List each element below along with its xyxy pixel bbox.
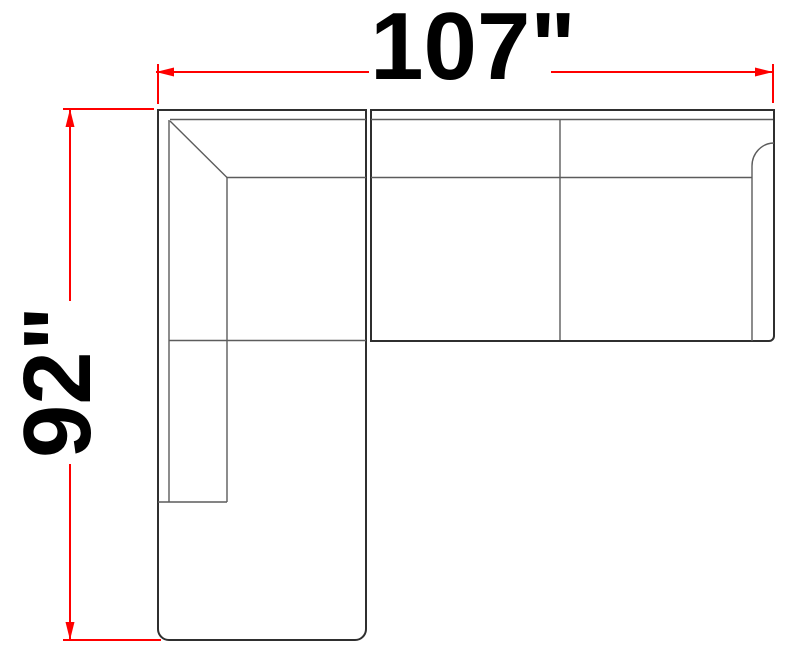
- width-dimension-label: 107": [370, 0, 576, 100]
- height-dimension-label: 92": [4, 306, 111, 458]
- sectional-sofa-plan-diagram: 107" 92": [0, 0, 807, 666]
- sofa-arm-inner-seam: [752, 143, 774, 341]
- sofa-seam-lines: [158, 120, 774, 503]
- corner-miter-seam: [170, 121, 227, 178]
- diagram-canvas: 107" 92": [0, 0, 807, 666]
- width-dimension: 107": [156, 0, 773, 104]
- chaise-piece-outline: [158, 110, 366, 640]
- sofa-outer-outlines: [158, 110, 774, 640]
- height-arrow-top-icon: [66, 109, 75, 127]
- height-arrow-bottom-icon: [66, 622, 75, 640]
- sofa-piece-outline: [371, 110, 774, 341]
- height-dimension: 92": [4, 109, 161, 640]
- width-arrow-right-icon: [755, 68, 773, 77]
